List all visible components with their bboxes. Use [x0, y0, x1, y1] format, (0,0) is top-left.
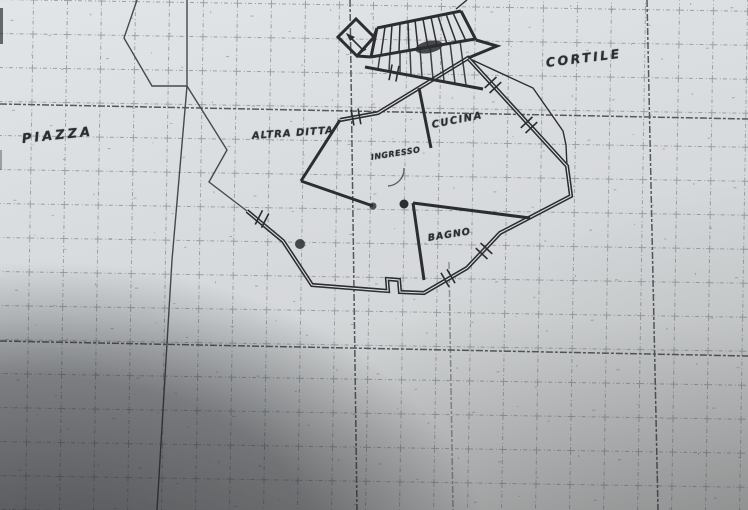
scanned-floorplan-photo: PIAZZA ALTRA DITTA CORTILE CUCINA INGRES…: [0, 0, 748, 510]
floorplan-drawing: [0, 0, 748, 510]
graph-paper-grid: [0, 0, 748, 510]
